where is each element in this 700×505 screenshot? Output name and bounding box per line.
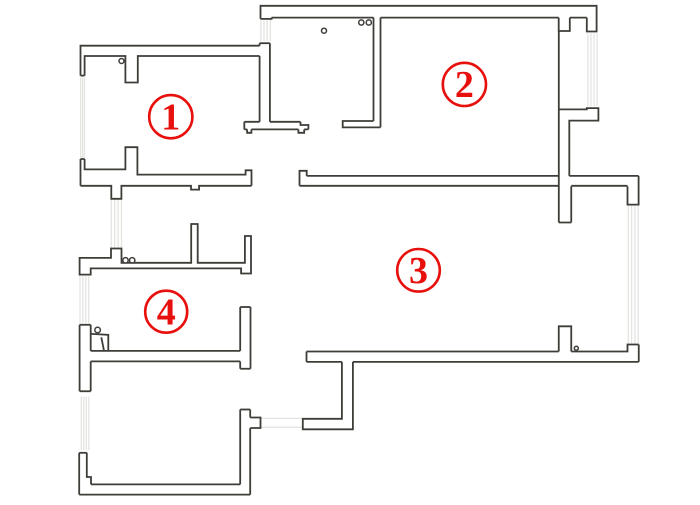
- svg-text:1: 1: [161, 97, 180, 139]
- svg-text:4: 4: [157, 292, 176, 334]
- svg-text:2: 2: [455, 64, 474, 106]
- svg-text:3: 3: [409, 250, 428, 292]
